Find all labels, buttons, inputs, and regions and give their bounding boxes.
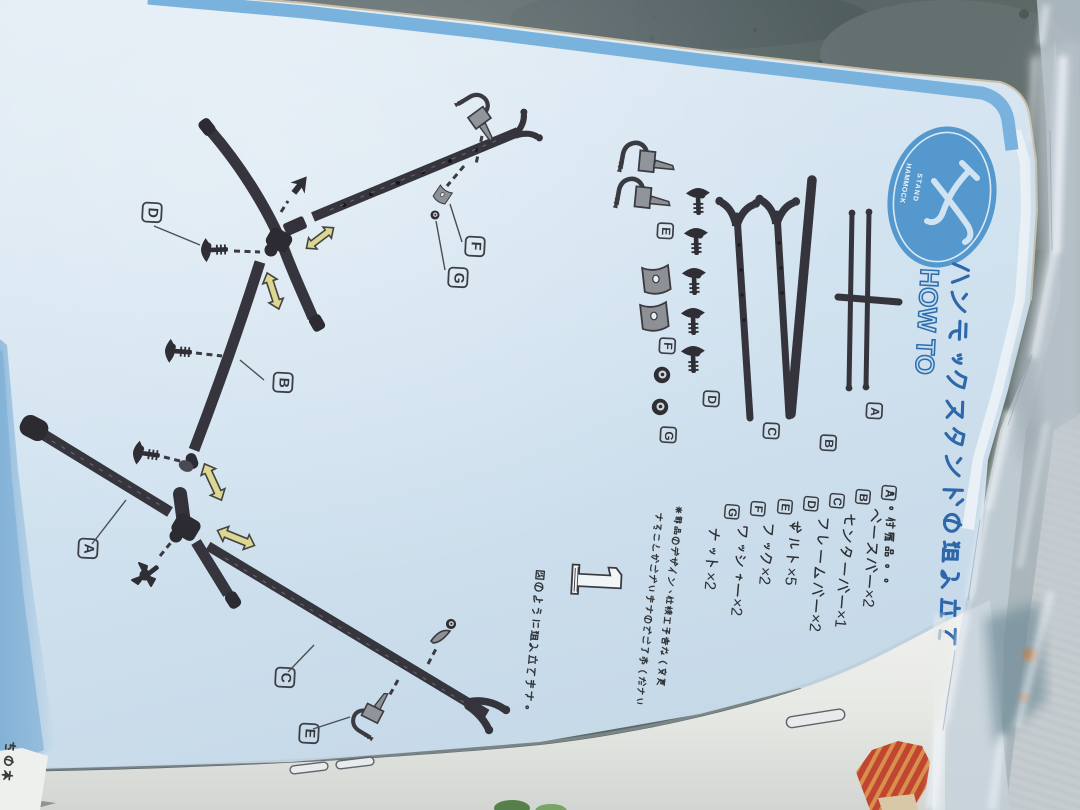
svg-text:×2: ×2 — [859, 589, 877, 608]
svg-text:G: G — [725, 508, 738, 518]
svg-text:×1: ×1 — [831, 609, 849, 628]
svg-text:C: C — [278, 672, 295, 683]
svg-text:D: D — [804, 500, 817, 509]
svg-text:×2: ×2 — [805, 613, 823, 632]
svg-text:B: B — [822, 439, 836, 449]
svg-text:E: E — [778, 503, 791, 512]
svg-text:E: E — [302, 728, 318, 738]
svg-text:×2: ×2 — [755, 566, 773, 585]
svg-text:F: F — [468, 241, 484, 251]
svg-text:F: F — [661, 342, 675, 350]
svg-text:G: G — [451, 272, 468, 284]
svg-text:×5: ×5 — [781, 567, 800, 587]
svg-text:D: D — [705, 395, 719, 405]
svg-text:C: C — [765, 427, 779, 437]
svg-text:HOW TO: HOW TO — [909, 268, 945, 376]
svg-text:A: A — [882, 489, 895, 498]
svg-text:D: D — [145, 207, 162, 218]
svg-text:B: B — [856, 493, 869, 502]
svg-text:C: C — [830, 497, 843, 506]
svg-text:A: A — [868, 407, 882, 417]
svg-text:G: G — [662, 431, 676, 441]
svg-text:A: A — [81, 543, 98, 554]
svg-text:×2: ×2 — [701, 571, 719, 590]
svg-text:×2: ×2 — [727, 597, 745, 616]
svg-text:B: B — [276, 377, 293, 388]
svg-text:E: E — [659, 227, 673, 236]
svg-text:F: F — [751, 505, 764, 513]
